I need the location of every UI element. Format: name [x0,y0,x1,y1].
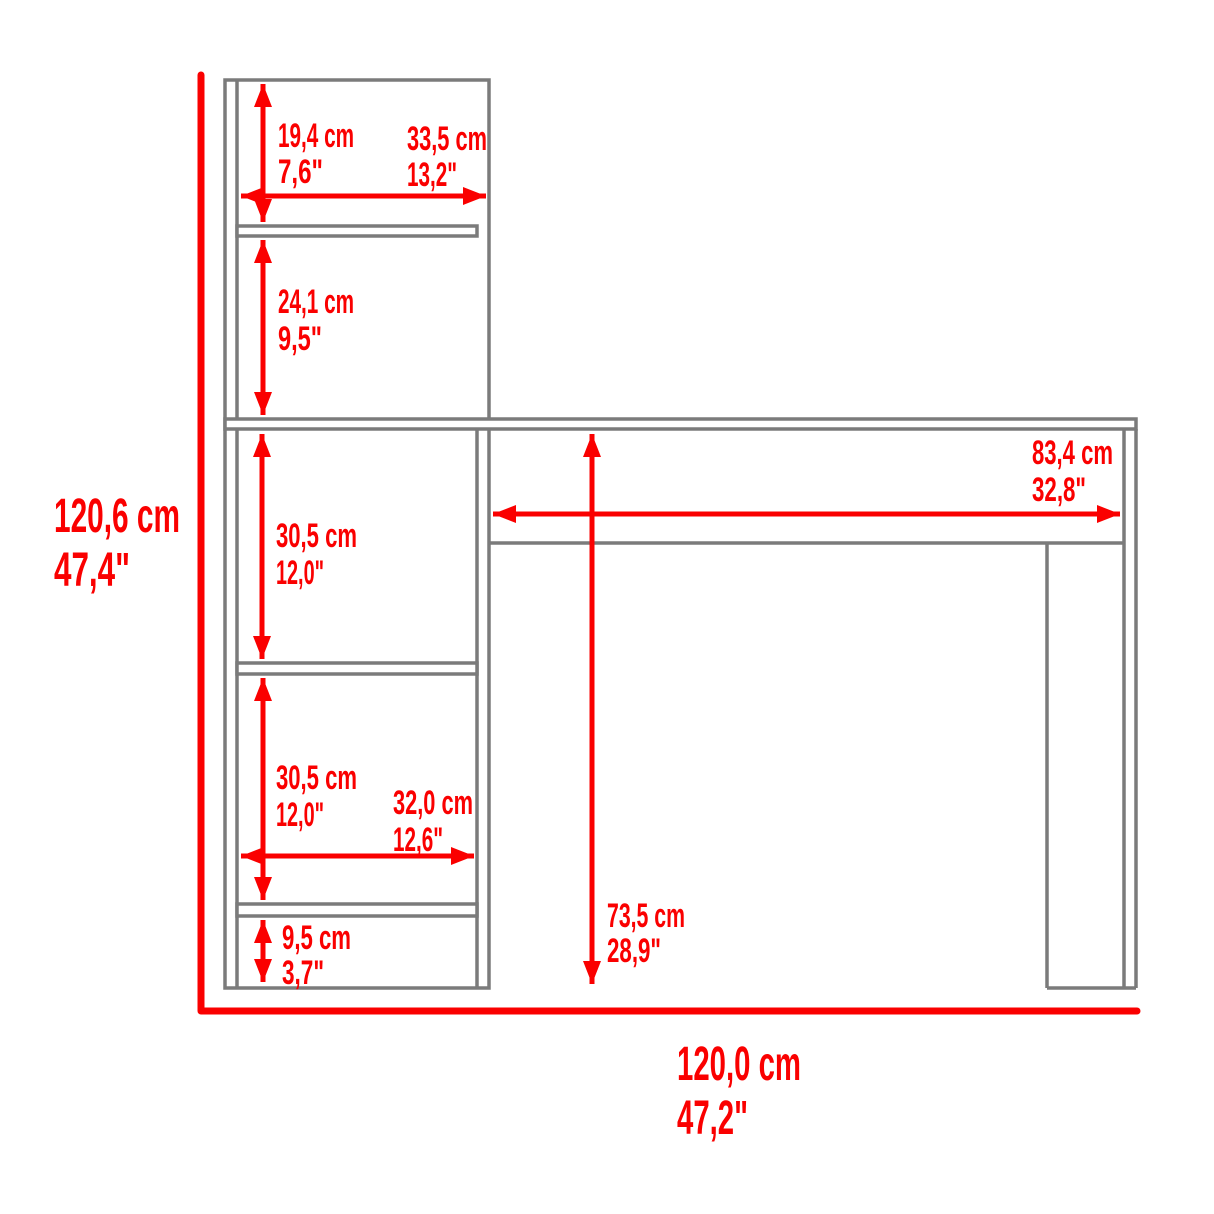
label-desk-underside-height-in: 28,9" [607,932,661,970]
label-overall-width-in: 47,2" [677,1092,748,1145]
label-desktop-clear-width-cm: 83,4 cm [1032,434,1113,472]
label-hutch-shelf-width-cm: 33,5 cm [407,120,487,158]
label-base-opening-height-cm: 9,5 cm [282,919,351,957]
dimension-diagram-page: 19,4 cm 7,6" 33,5 cm 13,2" 24,1 cm 9,5" … [0,0,1214,1214]
label-hutch-lower-height-in: 9,5" [278,320,322,358]
furniture-outline [225,80,1136,988]
label-shelf-opening-lower-height-in: 12,0" [276,796,324,834]
label-shelf-opening-width-cm: 32,0 cm [393,784,473,822]
label-shelf-opening-width-in: 12,6" [393,821,443,859]
dimension-labels: 19,4 cm 7,6" 33,5 cm 13,2" 24,1 cm 9,5" … [54,117,1113,1145]
label-shelf-opening-upper-height-in: 12,0" [276,554,324,592]
middle-shelf [237,663,477,674]
label-shelf-opening-upper-height-cm: 30,5 cm [276,517,357,555]
desk-top [225,419,1136,429]
label-hutch-top-height-in: 7,6" [278,153,323,191]
dimension-diagram: 19,4 cm 7,6" 33,5 cm 13,2" 24,1 cm 9,5" … [0,0,1214,1214]
label-base-opening-height-in: 3,7" [282,954,324,992]
hutch-shelf [237,226,477,236]
label-desk-underside-height-cm: 73,5 cm [607,897,685,935]
label-overall-width-cm: 120,0 cm [677,1038,801,1091]
label-overall-height-in: 47,4" [54,544,130,597]
label-shelf-opening-lower-height-cm: 30,5 cm [276,759,357,797]
label-overall-height-cm: 120,6 cm [54,490,180,543]
label-hutch-top-height-cm: 19,4 cm [278,117,354,155]
label-hutch-lower-height-cm: 24,1 cm [278,283,354,321]
label-desktop-clear-width-in: 32,8" [1032,471,1086,509]
bottom-shelf [237,904,477,916]
label-hutch-shelf-width-in: 13,2" [407,156,457,194]
